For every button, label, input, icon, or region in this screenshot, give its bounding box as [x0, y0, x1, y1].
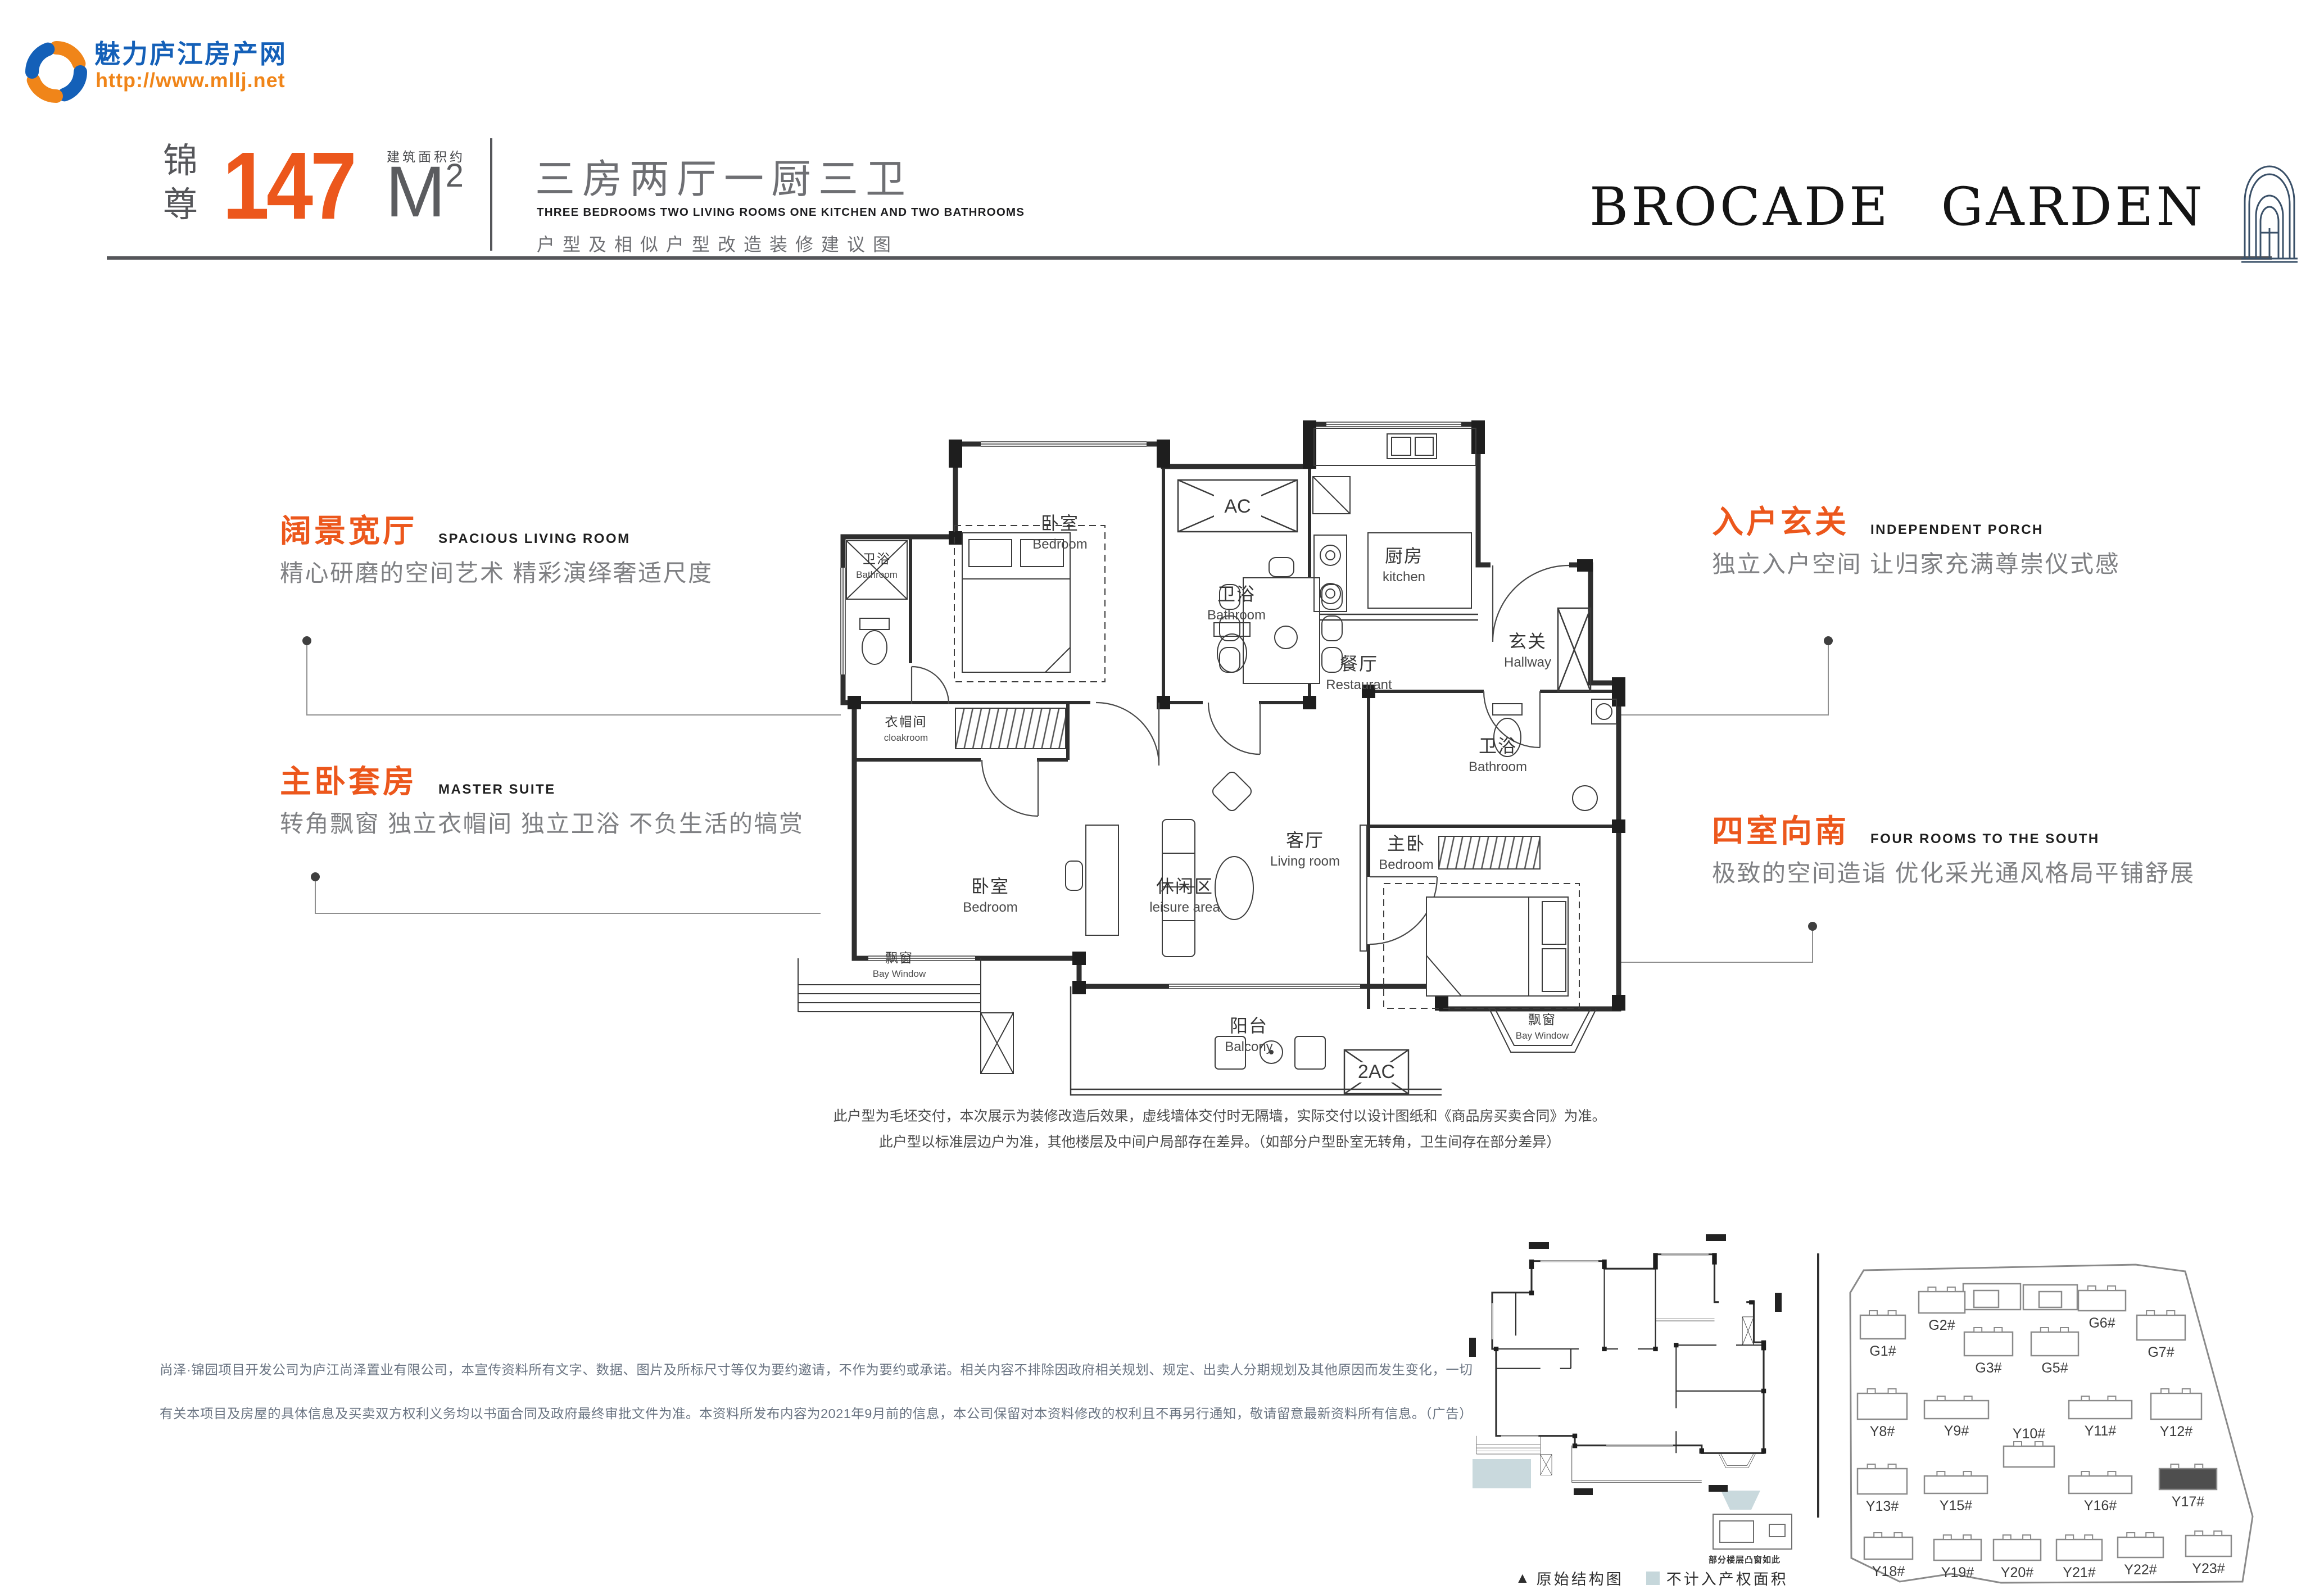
site-building-label: G1#: [1869, 1343, 1896, 1359]
annotation-master: 主卧套房 MASTER SUITE: [280, 757, 556, 802]
site-building: G5#: [2031, 1328, 2078, 1376]
bottom-section-divider: [1817, 1253, 1819, 1518]
annotation-south-en: FOUR ROOMS TO THE SOUTH: [1870, 831, 2100, 852]
room-label-zh: 厨房: [1385, 546, 1423, 566]
poster-canvas: AC2AC 卧室Bedroom卫浴Bathroom卫浴Bathroom厨房kit…: [0, 0, 2324, 1594]
room-label-zh: 休闲区: [1156, 876, 1213, 896]
room-label-zh: 卫浴: [1217, 584, 1256, 604]
site-building: Y8#: [1858, 1389, 1907, 1439]
site-building-label: G5#: [2041, 1360, 2068, 1376]
site-building: G7#: [2137, 1311, 2185, 1360]
room-label-zh: 阳台: [1230, 1016, 1268, 1036]
room-label-zh: 客厅: [1286, 830, 1324, 850]
site-building: Y15#: [1924, 1471, 1987, 1514]
site-building: Y22#: [2118, 1533, 2163, 1578]
room-label-en: cloakroom: [884, 732, 928, 743]
layout-title-en: THREE BEDROOMS TWO LIVING ROOMS ONE KITC…: [537, 206, 1025, 219]
room-label-en: kitchen: [1383, 569, 1425, 585]
room-label-en: Bedroom: [1379, 857, 1433, 872]
room-label-en: Bay Window: [873, 968, 926, 979]
site-building-label: Y9#: [1944, 1423, 1969, 1439]
brand-name: BROCADE GARDEN: [1589, 176, 2205, 238]
site-building: G1#: [1860, 1311, 1905, 1359]
room-label-zh: 卫浴: [1479, 736, 1517, 756]
site-logo-url[interactable]: http://www.mllj.net: [96, 69, 286, 92]
site-building-label: Y11#: [2085, 1423, 2117, 1439]
site-building-label: Y8#: [1870, 1424, 1895, 1439]
room-label-en: Bathroom: [1207, 608, 1266, 623]
site-building-label: Y18#: [1872, 1564, 1905, 1579]
site-building-label: Y16#: [2084, 1498, 2117, 1514]
site-building-label: Y23#: [2192, 1561, 2225, 1577]
site-building: G3#: [1964, 1328, 2013, 1376]
site-building-label: G7#: [2148, 1344, 2174, 1360]
site-building-label: Y12#: [2160, 1424, 2192, 1439]
logo-pinwheel-icon[interactable]: [32, 48, 80, 96]
room-label-zh: 玄关: [1508, 631, 1547, 651]
plan-delivery-note-line1: 此户型为毛坯交付，本次展示为装修改造后效果，虚线墙体交付时无隔墙，实际交付以设计…: [821, 1105, 1619, 1125]
room-label-en: Hallway: [1504, 655, 1551, 670]
site-building-label: Y10#: [2013, 1426, 2045, 1442]
site-building: Y23#: [2186, 1531, 2231, 1577]
layout-title: 三房两厅一厨三卫: [535, 147, 913, 205]
site-building-label: Y19#: [1941, 1565, 1974, 1581]
site-building: Y13#: [1858, 1464, 1907, 1514]
site-building-label: G6#: [2089, 1315, 2115, 1331]
site-building: G6#: [2078, 1286, 2126, 1331]
room-label-zh: 主卧: [1387, 834, 1425, 854]
room-label-en: Bedroom: [1032, 537, 1087, 552]
site-building: Y20#: [1994, 1535, 2041, 1581]
site-building: G2#: [1919, 1287, 1965, 1333]
annotation-south-title: 四室向南: [1712, 806, 1849, 852]
annotation-south: 四室向南 FOUR ROOMS TO THE SOUTH: [1712, 806, 2100, 852]
site-building-label: G3#: [1975, 1360, 2001, 1376]
room-label-zh: 餐厅: [1340, 654, 1378, 674]
room-label-en: leisure area: [1149, 900, 1220, 915]
area-value: 147: [223, 138, 354, 234]
site-building-label: Y13#: [1866, 1498, 1899, 1514]
site-building: Y16#: [2069, 1471, 2132, 1514]
triangle-icon: ▲: [1515, 1569, 1530, 1587]
room-label-zh: 飘窗: [885, 950, 913, 965]
unit-name: 锦 尊: [163, 144, 198, 223]
plan-delivery-note-line2: 此户型以标准层边户为准，其他楼层及中间户局部存在差异。（如部分户型卧室无转角，卫…: [821, 1131, 1619, 1151]
site-building-label: Y17#: [2172, 1494, 2204, 1510]
unit-name-char-2: 尊: [163, 188, 198, 223]
room-label-zh: 卫浴: [863, 551, 891, 566]
room-label-en: Bathroom: [1469, 759, 1527, 775]
area-unit-sup: 2: [446, 157, 464, 194]
header-rule: [107, 256, 2272, 260]
room-label-en: Living room: [1270, 854, 1340, 869]
unit-name-char-1: 锦: [163, 144, 198, 179]
site-building: Y17#: [2159, 1464, 2217, 1510]
annotation-living: 阔景宽厅 SPACIOUS LIVING ROOM: [280, 506, 631, 551]
shaded-area-swatch: [1646, 1572, 1660, 1585]
site-building-label: Y21#: [2063, 1565, 2095, 1581]
room-label-en: Balcony: [1225, 1039, 1272, 1054]
site-building: Y10#: [2004, 1426, 2054, 1467]
mini-structure-plan: [1469, 1234, 1792, 1549]
site-building: Y21#: [2056, 1535, 2102, 1581]
room-label-zh: 卧室: [1041, 513, 1079, 533]
legal-disclaimer-line2: 有关本项目及房屋的具体信息及买卖双方权利义务均以书面合同及政府最终审批文件为准。…: [160, 1403, 1473, 1422]
room-label-en: Bathroom: [856, 569, 898, 580]
annotation-master-title: 主卧套房: [280, 757, 417, 802]
header-vertical-divider: [490, 138, 492, 251]
annotation-porch-en: INDEPENDENT PORCH: [1870, 522, 2044, 542]
annotation-living-en: SPACIOUS LIVING ROOM: [438, 531, 631, 551]
area-unit-letter: M: [386, 152, 446, 232]
legend-row: ▲ 原始结构图 不计入产权面积: [1515, 1567, 1788, 1589]
site-logo-title[interactable]: 魅力庐江房产网: [94, 34, 287, 71]
area-unit: M2: [386, 156, 464, 228]
annotation-master-en: MASTER SUITE: [438, 782, 556, 802]
annotation-living-title: 阔景宽厅: [280, 506, 417, 551]
annotation-master-desc: 转角飘窗 独立衣帽间 独立卫浴 不负生活的犒赏: [280, 805, 804, 839]
annotation-porch-title: 入户玄关: [1712, 497, 1849, 542]
site-building: Y11#: [2069, 1396, 2132, 1439]
site-building: Y18#: [1864, 1533, 1913, 1579]
site-building: Y9#: [1924, 1396, 1988, 1439]
site-building-label: Y15#: [1940, 1498, 1972, 1514]
annotation-porch-desc: 独立入户空间 让归家充满尊崇仪式感: [1712, 545, 2120, 579]
site-plan: G1#G2#G6#G7#G3#G5#Y8#Y9#Y11#Y12#Y10#Y13#…: [1850, 1265, 2253, 1583]
layout-note: 户型及相似户型改造装修建议图: [537, 230, 899, 256]
site-building: Y12#: [2151, 1389, 2201, 1439]
annotation-porch: 入户玄关 INDEPENDENT PORCH: [1712, 497, 2044, 542]
ac-label: AC: [1224, 496, 1251, 517]
site-building-label: Y22#: [2124, 1562, 2157, 1578]
arch-door-icon: [2241, 166, 2298, 262]
room-label-en: Bedroom: [963, 900, 1017, 915]
room-label-zh: 卧室: [971, 876, 1009, 896]
room-label-en: Bay Window: [1516, 1030, 1569, 1041]
site-building: Y19#: [1934, 1535, 1981, 1581]
site-building-label: Y20#: [2001, 1565, 2033, 1581]
ac-label: 2AC: [1358, 1061, 1395, 1083]
legend-structure-label: 原始结构图: [1537, 1567, 1624, 1589]
room-label-zh: 衣帽间: [885, 714, 927, 729]
legal-disclaimer-line1: 尚泽·锦园项目开发公司为庐江尚泽置业有限公司，本宣传资料所有文字、数据、图片及所…: [160, 1359, 1473, 1378]
bay-window-note: 部分楼层凸窗如此: [1709, 1554, 1781, 1565]
room-label-zh: 飘窗: [1528, 1012, 1556, 1027]
site-building-label: G2#: [1928, 1317, 1955, 1333]
legend-exclude-label: 不计入产权面积: [1666, 1567, 1788, 1589]
annotation-south-desc: 极致的空间造诣 优化采光通风格局平铺舒展: [1712, 854, 2195, 889]
room-label-en: Restaurant: [1326, 677, 1392, 692]
annotation-living-desc: 精心研磨的空间艺术 精彩演绎奢适尺度: [280, 554, 713, 588]
